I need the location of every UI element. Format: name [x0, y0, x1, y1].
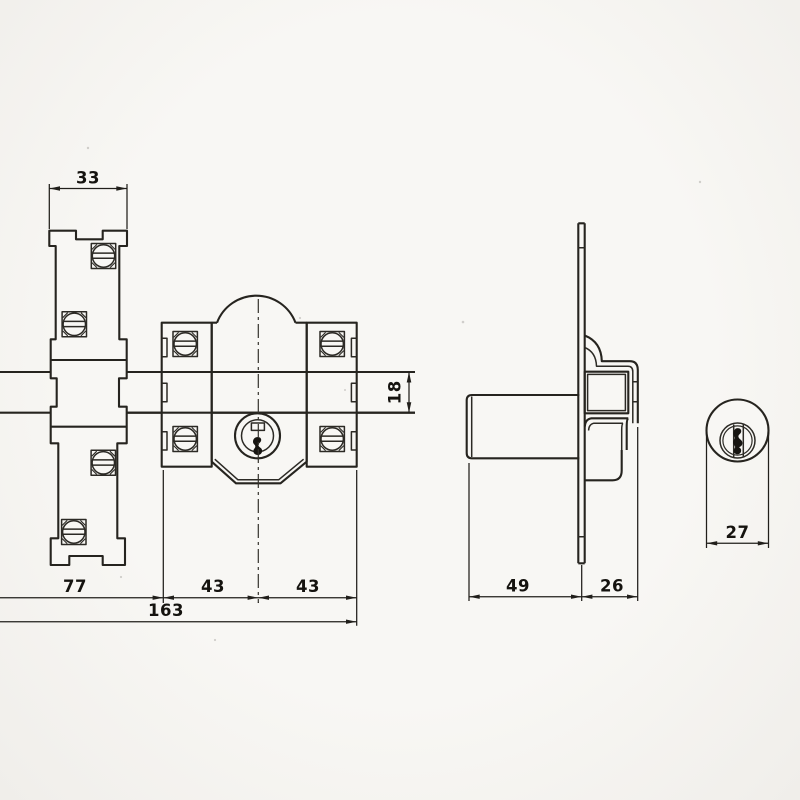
front-view: 33 18 77 43 43 163 [0, 169, 415, 626]
lower-housing [585, 418, 629, 480]
dim-lines [49, 184, 127, 229]
speck [120, 576, 122, 578]
dim-label: 27 [726, 523, 750, 542]
dim-label: 18 [386, 380, 405, 404]
dim-label: 163 [148, 601, 184, 620]
speck [299, 317, 301, 319]
scanned-technical-drawing: 33 18 77 43 43 163 [0, 0, 800, 800]
dim-label: 49 [506, 577, 530, 596]
lip-inner [589, 423, 623, 450]
dim-arrow [346, 620, 357, 624]
speck [462, 321, 465, 324]
dim-arrow [346, 596, 357, 600]
speck [344, 389, 346, 391]
lock-body [127, 296, 415, 602]
speck [214, 639, 216, 641]
strike-plate-outline [49, 231, 127, 565]
extension-lines [163, 470, 356, 626]
keyway-glyph [733, 428, 742, 454]
case-inner [588, 374, 626, 410]
dim-arrow [248, 596, 259, 600]
dim-label: 26 [600, 577, 624, 596]
cylinder-body-side [467, 395, 580, 458]
cylinder-face-view: 27 [707, 400, 769, 549]
case-outer [585, 372, 629, 414]
dim-plate-width: 33 [49, 169, 127, 230]
dim-arrow [571, 595, 582, 599]
dim-arrow [627, 595, 638, 599]
left-flange [162, 323, 212, 467]
dim-arrow [707, 541, 718, 545]
dim-arrow [49, 186, 60, 191]
case-box [585, 372, 629, 414]
lock-drawing-canvas: 33 18 77 43 43 163 [0, 0, 800, 800]
right-flange [307, 323, 357, 467]
dim-arrow [116, 186, 127, 191]
dim-arrow [582, 595, 593, 599]
housing-bottom [585, 450, 622, 480]
dim-arrow [258, 596, 269, 600]
side-view: 49 26 [467, 223, 638, 601]
dim-arrow [758, 541, 769, 545]
dim-arrow [407, 402, 412, 413]
dome [217, 296, 296, 323]
dim-arrow [153, 596, 164, 600]
dim-bar-height: 18 [386, 372, 412, 413]
dim-label: 43 [201, 577, 225, 596]
cylinder-front [235, 413, 280, 458]
dim-arrow [407, 372, 412, 383]
dim-label: 43 [296, 577, 320, 596]
speck [87, 147, 89, 149]
dim-arrow [469, 595, 480, 599]
dim-label: 33 [76, 169, 100, 188]
dim-label: 77 [63, 577, 87, 596]
dim-arrow [163, 596, 174, 600]
speck [699, 181, 701, 183]
strike-plate [49, 231, 127, 565]
